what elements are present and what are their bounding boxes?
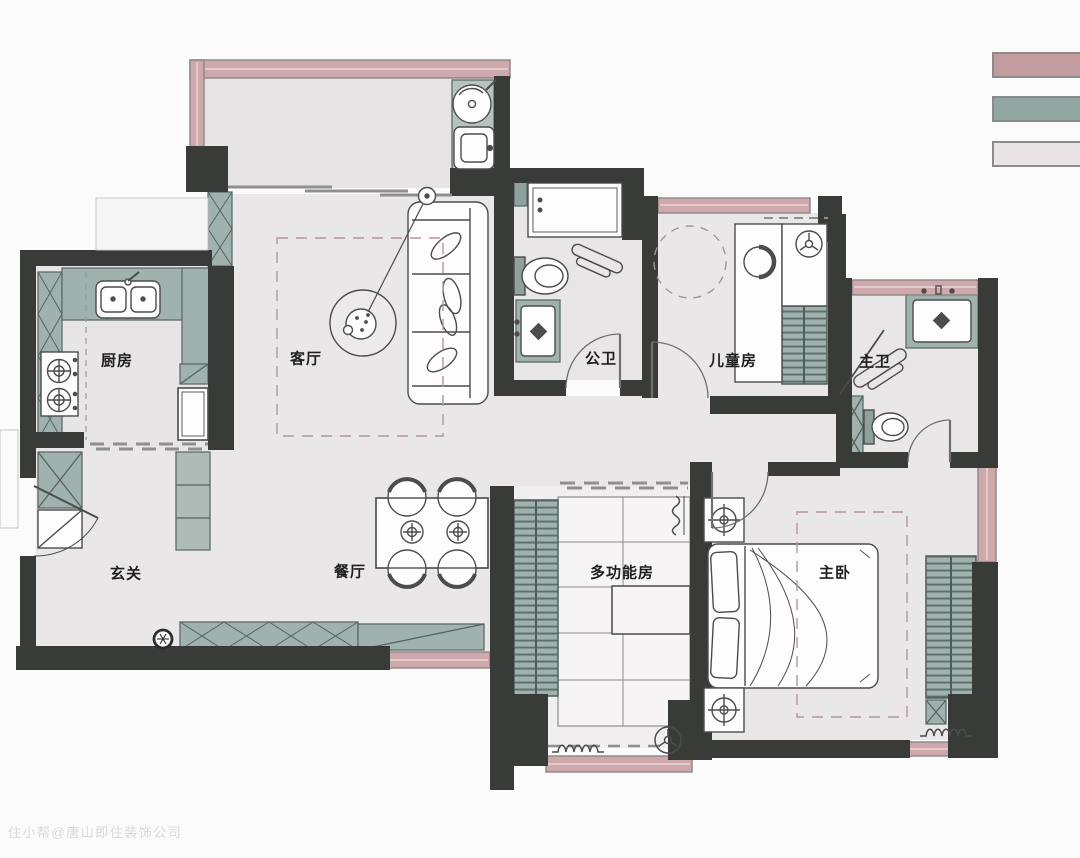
room-label-kids-room: 儿童房 — [709, 350, 757, 371]
room-label-living: 客厅 — [290, 348, 322, 369]
room-label-master-bath: 主卫 — [859, 351, 891, 372]
room-label-multi-room: 多功能房 — [590, 562, 654, 583]
legend-swatch-sage-cabinet — [992, 96, 1080, 122]
legend-swatch-light-floor — [992, 141, 1080, 167]
room-label-dining: 餐厅 — [334, 561, 366, 582]
room-label-entry: 玄关 — [110, 563, 142, 584]
fridge — [178, 388, 208, 440]
room-label-public-bath: 公卫 — [585, 348, 617, 369]
watermark: 住小帮@唐山即住装饰公司 — [8, 822, 182, 841]
room-label-kitchen: 厨房 — [101, 350, 133, 371]
tatami-platform — [558, 497, 690, 726]
floor-plan-drawing — [0, 0, 1080, 858]
legend-swatch-pink-wall — [992, 52, 1080, 78]
sofa — [408, 202, 488, 404]
misc — [96, 198, 208, 250]
room-label-master-bedroom: 主卧 — [819, 562, 851, 583]
floor-plan-canvas: 厨房 客厅 公卫 儿童房 主卫 玄关 餐厅 多功能房 主卧 住小帮@唐山即住装饰… — [0, 0, 1080, 858]
